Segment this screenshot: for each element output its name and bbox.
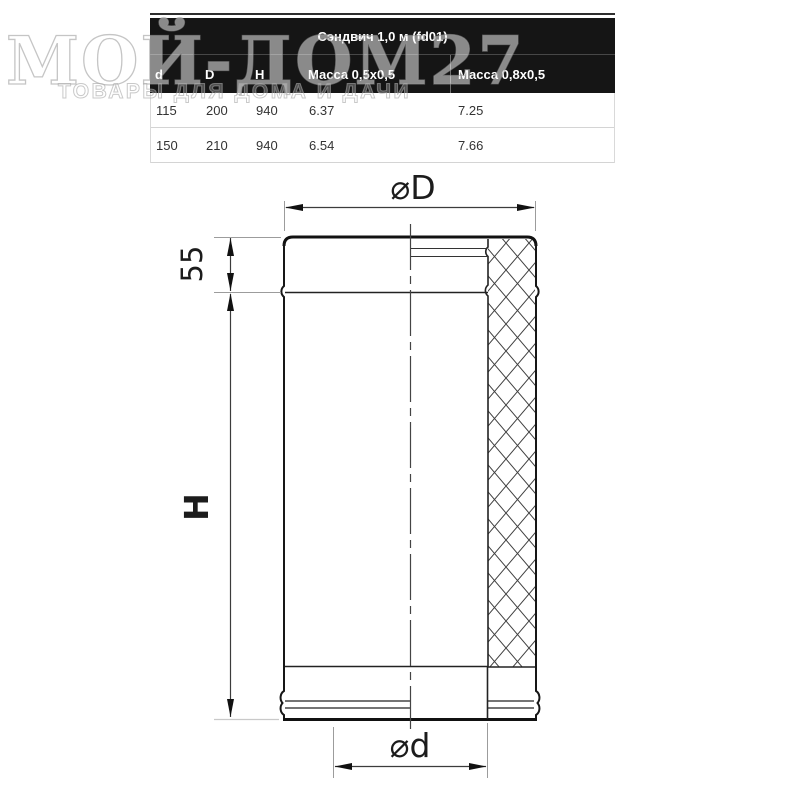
table-title: Сэндвич 1,0 м (fd01) — [150, 18, 615, 55]
spec-table: Сэндвич 1,0 м (fd01) d D H Масса 0,5x0,5… — [150, 13, 615, 163]
dim-socket-depth: 55 — [175, 238, 281, 293]
column-header-D: D — [200, 67, 250, 82]
outer-diameter-label: ⌀D — [390, 168, 435, 207]
cell-D: 200 — [201, 103, 251, 118]
cell-H: 940 — [251, 138, 304, 153]
column-header-H: H — [250, 67, 303, 82]
cell-d: 115 — [151, 103, 201, 118]
dim-height: H — [177, 293, 279, 720]
column-header-mass-08: Масса 0,8x0,5 — [450, 55, 610, 93]
socket-depth-label: 55 — [175, 246, 209, 283]
column-header-d: d — [150, 67, 200, 82]
cell-d: 150 — [151, 138, 201, 153]
height-label: H — [177, 493, 216, 521]
cell-D: 210 — [201, 138, 251, 153]
table-body: 115 200 940 6.37 7.25 150 210 940 6.54 7… — [150, 93, 615, 163]
table-column-headers: d D H Масса 0,5x0,5 Масса 0,8x0,5 — [150, 55, 615, 93]
dim-outer-diameter: ⌀D — [285, 168, 536, 231]
cell-H: 940 — [251, 103, 304, 118]
product-spec-image: ⌀D 55 H ⌀d — [0, 0, 790, 790]
column-header-mass-05: Масса 0,5x0,5 — [303, 67, 450, 82]
table-row: 115 200 940 6.37 7.25 — [151, 93, 614, 128]
cell-mass-08: 7.25 — [451, 103, 611, 118]
insulation-hatch — [485, 239, 535, 667]
table-row: 150 210 940 6.54 7.66 — [151, 128, 614, 163]
table-top-border — [150, 13, 615, 15]
cell-mass-05: 6.54 — [304, 138, 451, 153]
dim-inner-diameter: ⌀d — [334, 723, 488, 778]
cell-mass-05: 6.37 — [304, 103, 451, 118]
inner-diameter-label: ⌀d — [390, 726, 431, 765]
cell-mass-08: 7.66 — [451, 138, 611, 153]
table-header: Сэндвич 1,0 м (fd01) d D H Масса 0,5x0,5… — [150, 18, 615, 93]
